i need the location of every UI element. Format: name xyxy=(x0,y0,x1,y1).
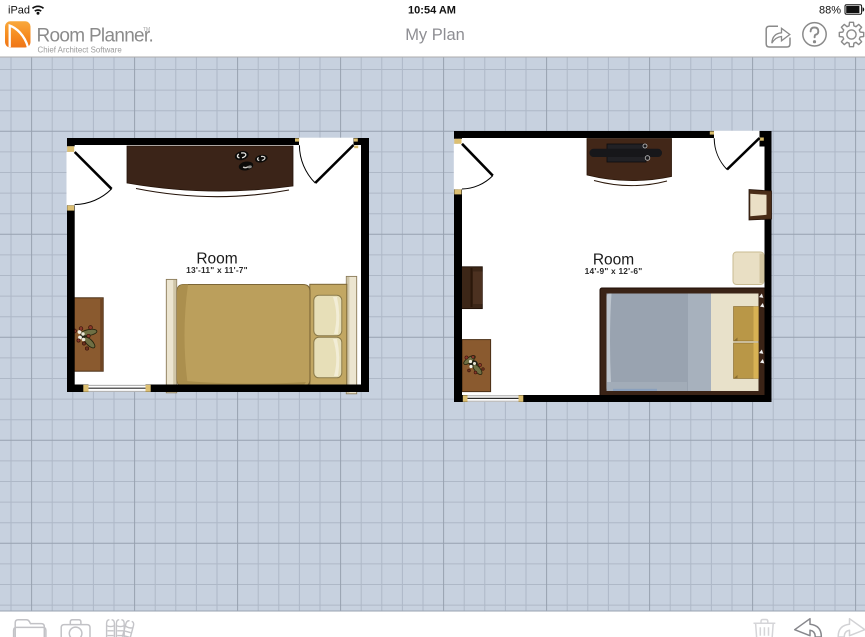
svg-text:TM: TM xyxy=(143,27,150,33)
svg-text:iPad: iPad xyxy=(8,5,30,17)
svg-text:Room Planner.: Room Planner. xyxy=(37,26,154,47)
svg-text:13'-11" x 11'-7": 13'-11" x 11'-7" xyxy=(186,265,248,275)
svg-text:14'-9" x 12'-6": 14'-9" x 12'-6" xyxy=(585,266,643,276)
svg-text:Chief Architect Software: Chief Architect Software xyxy=(38,46,123,55)
svg-text:88%: 88% xyxy=(819,5,841,17)
svg-text:10:54 AM: 10:54 AM xyxy=(408,5,456,17)
svg-text:My Plan: My Plan xyxy=(405,26,465,44)
